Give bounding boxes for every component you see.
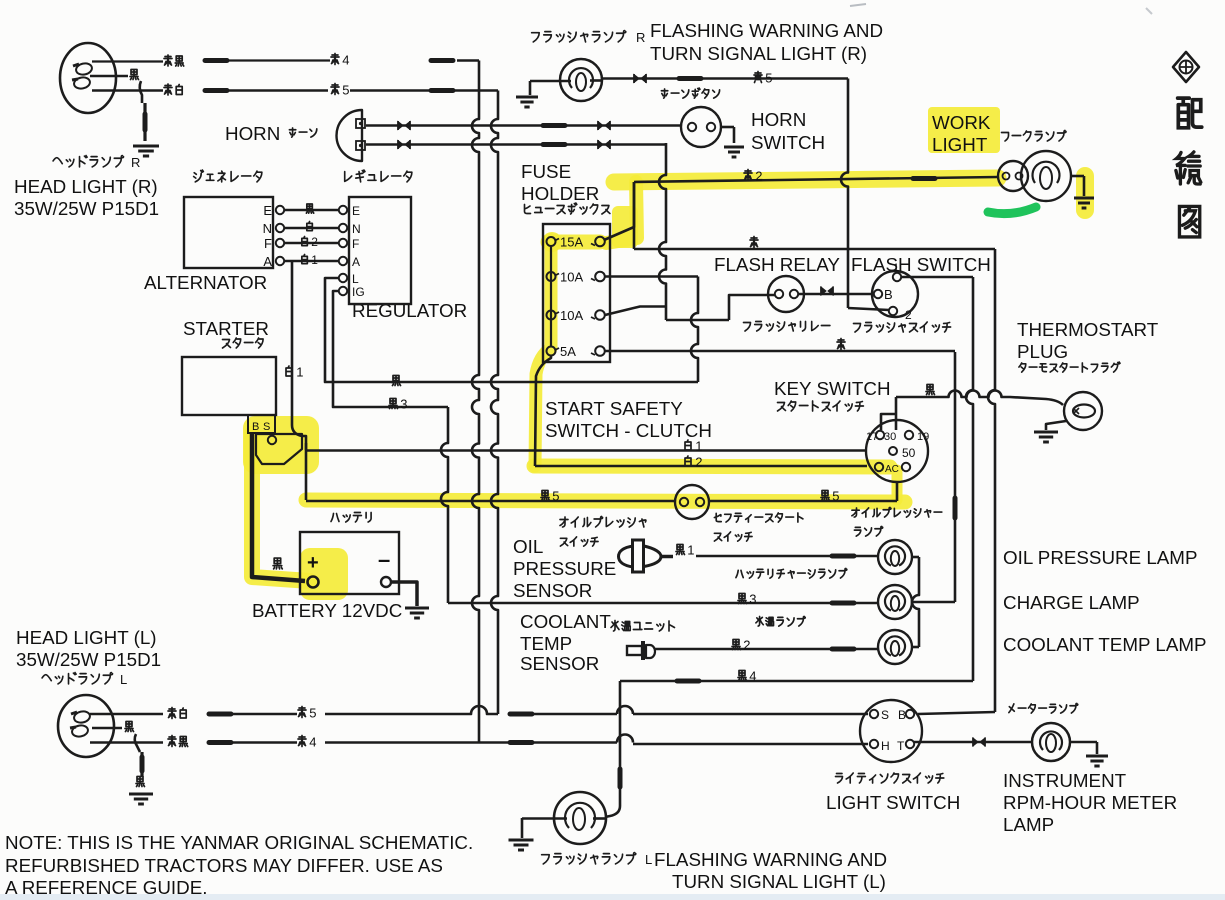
svg-text:FLASH SWITCH: FLASH SWITCH: [851, 254, 991, 275]
svg-text:E: E: [263, 203, 272, 218]
svg-text:LIGHT: LIGHT: [932, 134, 988, 155]
svg-text:COOLANT TEMP LAMP: COOLANT TEMP LAMP: [1003, 634, 1207, 655]
svg-text:30: 30: [884, 431, 896, 443]
svg-text:+: +: [307, 552, 319, 574]
svg-text:PRESSURE: PRESSURE: [513, 558, 616, 579]
svg-text:L: L: [352, 272, 359, 286]
svg-text:E: E: [352, 204, 360, 218]
svg-text:SWITCH - CLUTCH: SWITCH - CLUTCH: [545, 420, 712, 441]
svg-text:TEMP: TEMP: [520, 633, 572, 654]
svg-text:50: 50: [902, 446, 916, 460]
svg-text:35W/25W P15D1: 35W/25W P15D1: [16, 649, 161, 670]
svg-text:B: B: [252, 421, 259, 433]
svg-text:L: L: [120, 672, 127, 687]
svg-text:SENSOR: SENSOR: [520, 653, 599, 674]
svg-text:HORN: HORN: [751, 109, 806, 130]
svg-text:2: 2: [743, 638, 750, 653]
svg-text:4: 4: [749, 669, 756, 684]
svg-text:START SAFETY: START SAFETY: [545, 398, 683, 419]
svg-text:1: 1: [687, 543, 694, 558]
svg-text:HORN: HORN: [225, 123, 280, 144]
svg-text:AC: AC: [885, 464, 899, 475]
svg-text:OIL: OIL: [513, 536, 543, 557]
svg-text:KEY SWITCH: KEY SWITCH: [774, 378, 891, 399]
svg-text:B: B: [884, 287, 893, 302]
svg-text:5: 5: [765, 71, 772, 86]
svg-text:1: 1: [695, 439, 702, 454]
svg-text:REFURBISHED TRACTORS MAY DIFFE: REFURBISHED TRACTORS MAY DIFFER. USE AS: [5, 855, 443, 876]
svg-text:INSTRUMENT: INSTRUMENT: [1003, 770, 1127, 791]
svg-text:15A: 15A: [560, 235, 583, 250]
svg-text:THERMOSTART: THERMOSTART: [1017, 319, 1159, 340]
svg-text:FUSE: FUSE: [521, 161, 571, 182]
svg-text:L: L: [645, 852, 652, 867]
svg-text:R: R: [131, 155, 140, 170]
svg-text:S: S: [263, 421, 270, 433]
svg-text:B: B: [898, 708, 906, 722]
svg-text:10A: 10A: [560, 270, 583, 285]
svg-text:R: R: [636, 30, 645, 45]
svg-text:STARTER: STARTER: [183, 318, 269, 339]
svg-text:1: 1: [893, 262, 899, 274]
svg-text:F: F: [264, 236, 272, 251]
svg-text:–: –: [378, 547, 390, 572]
svg-text:HEAD LIGHT (L): HEAD LIGHT (L): [16, 627, 157, 648]
svg-text:SENSOR: SENSOR: [513, 580, 592, 601]
svg-text:FLASHING WARNING AND: FLASHING WARNING AND: [654, 849, 887, 870]
svg-text:TURN SIGNAL LIGHT (L): TURN SIGNAL LIGHT (L): [672, 871, 886, 892]
svg-text:IG: IG: [352, 285, 365, 299]
svg-text:COOLANT: COOLANT: [520, 611, 611, 632]
svg-text:N: N: [352, 222, 361, 236]
svg-text:5: 5: [342, 83, 349, 98]
svg-text:5: 5: [309, 706, 316, 721]
svg-text:F: F: [352, 237, 359, 251]
svg-text:2: 2: [695, 455, 702, 470]
svg-text:S: S: [881, 708, 889, 722]
svg-text:ALTERNATOR: ALTERNATOR: [144, 272, 267, 293]
svg-text:4: 4: [342, 53, 349, 68]
svg-text:WORK: WORK: [932, 112, 991, 133]
svg-text:HEAD LIGHT (R): HEAD LIGHT (R): [14, 176, 158, 197]
svg-text:4: 4: [309, 735, 316, 750]
svg-text:1: 1: [296, 365, 303, 380]
svg-text:A: A: [263, 254, 272, 269]
svg-text:1: 1: [311, 253, 318, 267]
svg-text:2: 2: [905, 308, 912, 322]
svg-text:35W/25W P15D1: 35W/25W P15D1: [14, 198, 159, 219]
svg-text:LIGHT SWITCH: LIGHT SWITCH: [826, 792, 960, 813]
svg-text:A: A: [352, 255, 360, 269]
svg-text:5A: 5A: [560, 344, 576, 359]
svg-text:BATTERY 12VDC: BATTERY 12VDC: [252, 600, 402, 621]
svg-text:5: 5: [552, 489, 559, 504]
svg-text:T: T: [897, 739, 905, 753]
svg-text:RPM-HOUR METER: RPM-HOUR METER: [1003, 792, 1177, 813]
svg-text:A REFERENCE GUIDE.: A REFERENCE GUIDE.: [5, 877, 207, 898]
svg-text:19: 19: [917, 431, 929, 443]
svg-text:H: H: [881, 739, 890, 753]
svg-text:PLUG: PLUG: [1017, 341, 1068, 362]
svg-text:10A: 10A: [560, 308, 583, 323]
svg-text:N: N: [263, 221, 272, 236]
svg-text:5: 5: [832, 489, 839, 504]
svg-text:FLASHING WARNING AND: FLASHING WARNING AND: [650, 20, 883, 41]
svg-text:3: 3: [749, 592, 756, 607]
svg-text:2: 2: [755, 169, 762, 184]
svg-text:HOLDER: HOLDER: [521, 183, 599, 204]
svg-text:CHARGE LAMP: CHARGE LAMP: [1003, 592, 1140, 613]
svg-text:LAMP: LAMP: [1003, 814, 1054, 835]
svg-text:TURN SIGNAL LIGHT (R): TURN SIGNAL LIGHT (R): [650, 43, 867, 64]
svg-text:SWITCH: SWITCH: [751, 132, 825, 153]
svg-text:3: 3: [400, 397, 407, 412]
svg-text:FLASH RELAY: FLASH RELAY: [714, 254, 840, 275]
svg-text:NOTE: THIS IS THE YANMAR ORIG: NOTE: THIS IS THE YANMAR ORIGINAL SCHEMA…: [5, 832, 473, 853]
svg-text:2: 2: [311, 235, 318, 249]
svg-text:OIL PRESSURE LAMP: OIL PRESSURE LAMP: [1003, 547, 1197, 568]
